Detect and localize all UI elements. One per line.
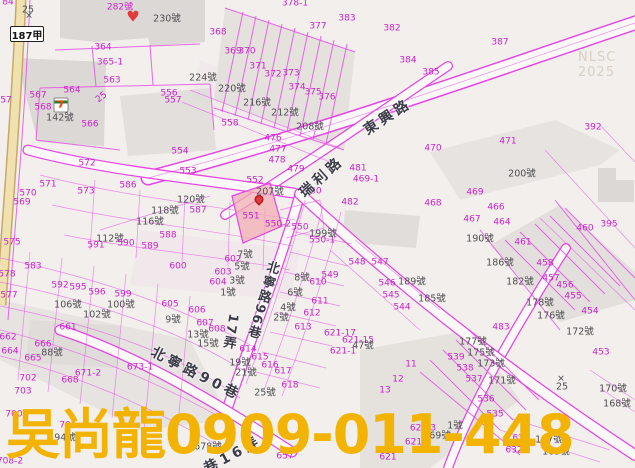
road-name-label: 東興路 (362, 96, 415, 137)
parcel-number-label: 599 (114, 291, 131, 300)
parcel-number-label: 376 (318, 94, 335, 103)
address-number-label: 189號 (398, 277, 426, 287)
parcel-number-label: 564 (63, 87, 80, 96)
parcel-number-label: 583 (24, 263, 41, 272)
parcel-number-label: 378-1 (282, 0, 308, 9)
address-number-label: 200號 (508, 169, 536, 179)
parcel-number-label: 575 (3, 239, 20, 248)
parcel-number-label: 550 (291, 224, 308, 233)
address-number-label: 102號 (83, 310, 111, 320)
parcel-number-label: 665 (24, 355, 41, 364)
highway-187-shield: 187甲 (10, 26, 44, 42)
parcel-number-label: 571 (39, 181, 56, 190)
address-number-label: 1號 (220, 288, 236, 298)
parcel-number-label: 586 (119, 182, 136, 191)
parcel-number-label: 460 (576, 225, 593, 234)
parcel-number-label: 468 (424, 200, 441, 209)
parcel-number-label: 11 (405, 361, 416, 370)
parcel-number-label: 84 (2, 0, 13, 8)
address-number-label: 15號 (197, 339, 219, 349)
survey-x-mark-icon: ✕ (25, 13, 33, 22)
parcel-number-label: 611 (311, 298, 328, 307)
parcel-number-label: 554 (171, 148, 188, 157)
parcel-number-label: 569 (13, 199, 30, 208)
parcel-number-label: 477 (269, 146, 286, 155)
parcel-number-label: 572 (78, 160, 95, 169)
parcel-number-label: 538 (456, 365, 473, 374)
parcel-number-label: 702 (19, 375, 36, 384)
parcel-number-label: 387 (491, 39, 508, 48)
address-number-label: 120號 (177, 195, 205, 205)
address-number-label: 100號 (107, 300, 135, 310)
parcel-number-label: 673-1 (127, 364, 153, 373)
parcel-number-label: 600 (169, 263, 186, 272)
parcel-number-label: 558 (221, 120, 238, 129)
parcel-number-label: 552 (246, 177, 263, 186)
parcel-number-label: 604 (209, 279, 226, 288)
parcel-number-label: 573 (77, 188, 94, 197)
parcel-number-label: 539 (447, 354, 464, 363)
parcel-number-label: 482 (341, 199, 358, 208)
parcel-number-label: 662 (0, 334, 17, 343)
parcel-number-label: 470 (424, 145, 441, 154)
parcel-number-label: 469-1 (353, 176, 379, 185)
road-name-label: 瑞利路 (297, 154, 346, 201)
parcel-number-label: 471 (499, 138, 516, 147)
address-number-label: 172號 (566, 327, 594, 337)
parcel-number-label: 377 (309, 23, 326, 32)
parcel-number-label: 563 (103, 77, 120, 86)
parcel-number-label: 392 (584, 124, 601, 133)
address-number-label: 175號 (467, 348, 495, 358)
parcel-number-label: 365-1 (97, 59, 123, 68)
parcel-number-label: 557 (164, 97, 181, 106)
parcel-number-label: 613 (294, 324, 311, 333)
address-number-label: 186號 (486, 258, 514, 268)
address-number-label: 208號 (296, 122, 324, 132)
parcel-number-label: 479 (287, 166, 304, 175)
address-number-label: 212號 (271, 108, 299, 118)
address-number-label: 199號 (309, 229, 337, 239)
address-number-label: 230號 (153, 14, 181, 24)
address-number-label: 88號 (41, 348, 63, 358)
address-number-label: 220號 (218, 84, 246, 94)
parcel-number-label: 553 (179, 168, 196, 177)
address-number-label: 3號 (229, 276, 245, 286)
parcel-number-label: 617 (274, 368, 291, 377)
address-number-label: 173號 (477, 359, 505, 369)
parcel-number-label: 577 (0, 292, 17, 301)
parcel-number-label: 395 (600, 221, 617, 230)
parcel-number-label: 606 (188, 307, 205, 316)
address-number-label: 190號 (466, 234, 494, 244)
parcel-number-label: 544 (393, 304, 410, 313)
parcel-number-label: 588 (159, 232, 176, 241)
parcel-number-label: 364 (94, 44, 111, 53)
address-number-label: 8號 (294, 273, 310, 283)
parcel-number-label: 548 (348, 259, 365, 268)
address-number-label: 116號 (136, 217, 164, 227)
seven-eleven-icon[interactable] (54, 98, 69, 113)
address-number-label: 21號 (235, 368, 257, 378)
parcel-number-label: 587 (189, 207, 206, 216)
parcel-number-label: 537 (465, 376, 482, 385)
parcel-number-label: 469 (466, 189, 483, 198)
parcel-number-label: 385 (422, 69, 439, 78)
parcel-number-label: 373 (282, 70, 299, 79)
parcel-number-label: 621-1 (330, 348, 356, 357)
parcel-number-label: 546 (378, 280, 395, 289)
parcel-number-label: 566 (81, 121, 98, 130)
parcel-number-label: 464 (493, 219, 510, 228)
parcel-number-label: 549 (321, 272, 338, 281)
parcel-number-label: 483 (492, 324, 509, 333)
parcel-number-label: 547 (371, 259, 388, 268)
parcel-number-label: 384 (399, 57, 416, 66)
address-number-label: 106號 (54, 300, 82, 310)
parcel-number-label: 671-2 (75, 370, 101, 379)
address-number-label: 6號 (287, 288, 303, 298)
address-number-label: 182號 (506, 277, 534, 287)
parcel-number-label: 612 (303, 310, 320, 319)
parcel-number-label: 25 (95, 91, 110, 105)
parcel-number-label: 567 (29, 92, 46, 101)
parcel-number-label: 458 (536, 260, 553, 269)
parcel-number-label: 12 (392, 376, 403, 385)
map-marker-heart-icon[interactable]: ♥ (126, 10, 139, 25)
address-number-label: 171號 (488, 376, 516, 386)
address-number-label: 142號 (46, 113, 74, 123)
cadastral-map-canvas[interactable]: 8425✕282號♥230號36836937037137237337437537… (0, 0, 635, 468)
parcel-number-label: 664 (1, 348, 18, 357)
parcel-number-label: 383 (338, 15, 355, 24)
parcel-number-label: 592 (51, 282, 68, 291)
parcel-number-label: 668 (61, 377, 78, 386)
parcel-number-label: 568 (34, 104, 51, 113)
parcel-number-label: 589 (141, 243, 158, 252)
address-number-label: 178號 (526, 298, 554, 308)
road-name-label-vertical: 17弄 (220, 313, 239, 352)
parcel-number-label: 595 (69, 284, 86, 293)
parcel-number-label: 605 (161, 301, 178, 310)
parcel-number-label: 481 (349, 165, 366, 174)
parcel-number-label: 591 (87, 242, 104, 251)
parcel-number-label: 374 (288, 84, 305, 93)
parcel-number-label: 551 (242, 213, 259, 222)
parcel-number-label: 578 (0, 271, 16, 280)
address-number-label: 224號 (189, 73, 217, 83)
parcel-number-label: 453 (592, 349, 609, 358)
parcel-number-label: 461 (514, 239, 531, 248)
parcel-number-label: 550-2 (265, 221, 291, 230)
parcel-number-label: 455 (564, 293, 581, 302)
address-number-label: 185號 (418, 294, 446, 304)
address-number-label: 5號 (234, 262, 250, 272)
agent-contact-watermark: 吳尚龍0909-011-448 (6, 390, 635, 468)
parcel-number-label: 476 (264, 135, 281, 144)
parcel-number-label: 590 (117, 240, 134, 249)
parcel-number-label: 456 (556, 282, 573, 291)
address-number-label: 177號 (459, 337, 487, 347)
parcel-number-label: 372 (264, 71, 281, 80)
parcel-number-label: 382 (383, 25, 400, 34)
address-number-label: 176號 (537, 311, 565, 321)
parcel-number-label: 57 (0, 97, 11, 106)
address-number-label: 7號 (237, 250, 253, 260)
parcel-number-label: 596 (88, 289, 105, 298)
address-number-label: 118號 (151, 206, 179, 216)
parcel-number-label: 466 (487, 204, 504, 213)
address-number-label: 2號 (273, 313, 289, 323)
parcel-number-label: 478 (268, 157, 285, 166)
parcel-number-label: 545 (382, 292, 399, 301)
parcel-number-label: 370 (238, 48, 255, 57)
address-number-label: 216號 (243, 98, 271, 108)
nlsc-watermark: NLSC 2025 (578, 50, 635, 80)
parcel-number-label: 467 (463, 216, 480, 225)
address-number-label: 9號 (165, 315, 181, 325)
parcel-number-label: 454 (581, 308, 598, 317)
parcel-number-label: 661 (59, 324, 76, 333)
parcel-number-label: 368 (209, 29, 226, 38)
